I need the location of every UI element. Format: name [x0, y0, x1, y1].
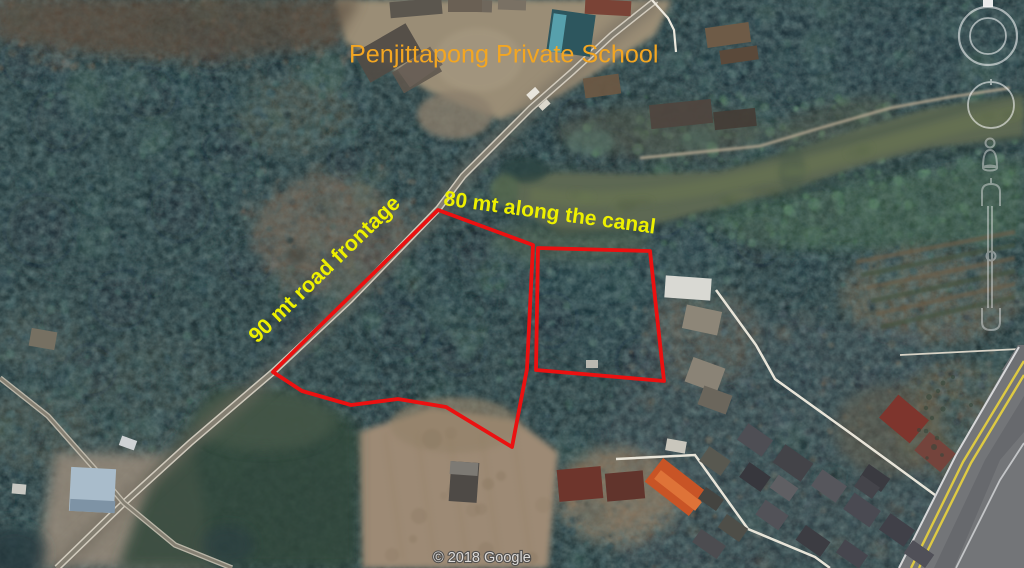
svg-text:© 2018 Google: © 2018 Google — [433, 550, 531, 566]
svg-text:Penjittapong Private School: Penjittapong Private School — [349, 41, 658, 69]
